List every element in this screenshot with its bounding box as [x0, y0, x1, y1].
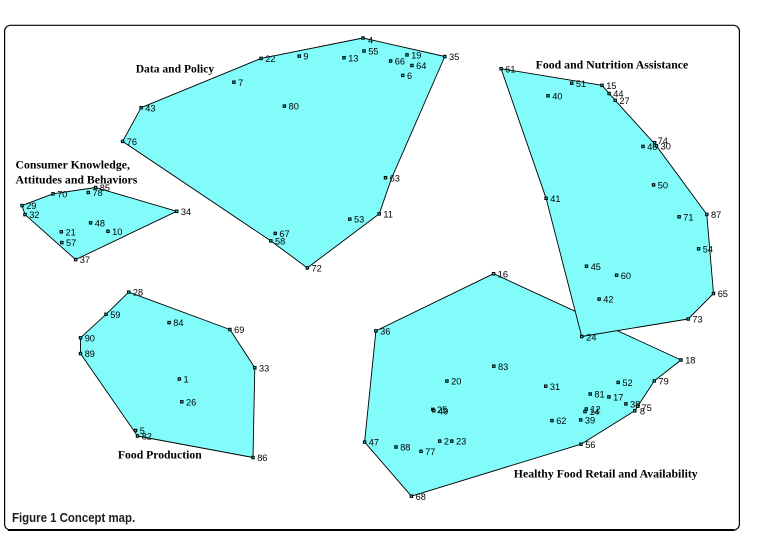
svg-text:35: 35	[449, 52, 459, 62]
svg-text:80: 80	[289, 102, 299, 112]
svg-text:71: 71	[683, 212, 693, 222]
svg-text:2: 2	[444, 437, 449, 447]
svg-text:23: 23	[456, 437, 466, 447]
svg-text:78: 78	[93, 188, 103, 198]
svg-text:36: 36	[380, 327, 390, 337]
svg-text:26: 26	[186, 397, 196, 407]
svg-text:86: 86	[257, 453, 267, 463]
svg-text:41: 41	[550, 194, 560, 204]
svg-text:19: 19	[411, 51, 421, 61]
svg-text:70: 70	[57, 189, 67, 199]
svg-text:60: 60	[621, 271, 631, 281]
svg-text:68: 68	[416, 492, 426, 502]
svg-text:7: 7	[238, 78, 243, 88]
svg-text:62: 62	[556, 416, 566, 426]
svg-text:31: 31	[550, 382, 560, 392]
svg-text:79: 79	[659, 377, 669, 387]
svg-text:51: 51	[576, 79, 586, 89]
svg-text:Food Production: Food Production	[118, 448, 202, 462]
svg-text:20: 20	[451, 377, 461, 387]
svg-text:9: 9	[303, 52, 308, 62]
svg-text:13: 13	[348, 53, 358, 63]
svg-text:83: 83	[498, 362, 508, 372]
svg-text:27: 27	[619, 96, 629, 106]
svg-text:33: 33	[259, 363, 269, 373]
svg-text:52: 52	[622, 378, 632, 388]
svg-text:73: 73	[692, 315, 702, 325]
svg-text:55: 55	[368, 47, 378, 57]
svg-text:64: 64	[416, 61, 426, 71]
svg-text:48: 48	[95, 218, 105, 228]
svg-text:32: 32	[29, 210, 39, 220]
svg-text:Healthy Food Retail and Availa: Healthy Food Retail and Availability	[514, 467, 698, 481]
svg-text:16: 16	[498, 269, 508, 279]
svg-text:47: 47	[369, 438, 379, 448]
svg-text:45: 45	[591, 262, 601, 272]
svg-text:11: 11	[383, 210, 393, 220]
svg-text:49: 49	[438, 406, 448, 416]
svg-text:Consumer Knowledge,: Consumer Knowledge,	[16, 157, 130, 171]
svg-text:84: 84	[173, 318, 183, 328]
svg-text:Data and Policy: Data and Policy	[136, 62, 215, 76]
svg-text:65: 65	[718, 289, 728, 299]
svg-text:24: 24	[586, 333, 596, 343]
svg-text:90: 90	[85, 333, 95, 343]
svg-text:77: 77	[425, 447, 435, 457]
svg-text:4: 4	[368, 35, 373, 45]
svg-text:42: 42	[603, 295, 613, 305]
svg-text:40: 40	[552, 91, 562, 101]
svg-text:82: 82	[142, 432, 152, 442]
svg-text:39: 39	[585, 416, 595, 426]
svg-text:6: 6	[407, 71, 412, 81]
svg-text:30: 30	[661, 141, 671, 151]
svg-text:58: 58	[275, 237, 285, 247]
svg-text:72: 72	[312, 264, 322, 274]
svg-text:21: 21	[66, 227, 76, 237]
svg-text:76: 76	[127, 137, 137, 147]
svg-text:37: 37	[80, 255, 90, 265]
svg-text:56: 56	[585, 440, 595, 450]
svg-text:54: 54	[703, 244, 713, 254]
svg-text:61: 61	[505, 64, 515, 74]
svg-text:63: 63	[390, 173, 400, 183]
svg-text:50: 50	[658, 181, 668, 191]
svg-text:89: 89	[85, 349, 95, 359]
svg-text:8: 8	[640, 407, 645, 417]
svg-text:34: 34	[181, 207, 191, 217]
svg-text:10: 10	[112, 227, 122, 237]
svg-text:Figure 1 Concept map.: Figure 1 Concept map.	[12, 510, 135, 525]
svg-text:Attitudes and Behaviors: Attitudes and Behaviors	[16, 173, 138, 187]
svg-text:53: 53	[354, 215, 364, 225]
svg-text:22: 22	[265, 54, 275, 64]
svg-text:Food and Nutrition Assistance: Food and Nutrition Assistance	[536, 57, 689, 71]
svg-text:69: 69	[234, 325, 244, 335]
svg-text:28: 28	[133, 288, 143, 298]
svg-text:57: 57	[66, 238, 76, 248]
svg-text:43: 43	[145, 103, 155, 113]
svg-text:81: 81	[594, 390, 604, 400]
svg-text:18: 18	[685, 356, 695, 366]
svg-text:59: 59	[110, 310, 120, 320]
svg-text:66: 66	[395, 57, 405, 67]
svg-text:87: 87	[711, 210, 721, 220]
svg-text:88: 88	[400, 443, 410, 453]
svg-text:17: 17	[613, 393, 623, 403]
svg-text:1: 1	[184, 375, 189, 385]
